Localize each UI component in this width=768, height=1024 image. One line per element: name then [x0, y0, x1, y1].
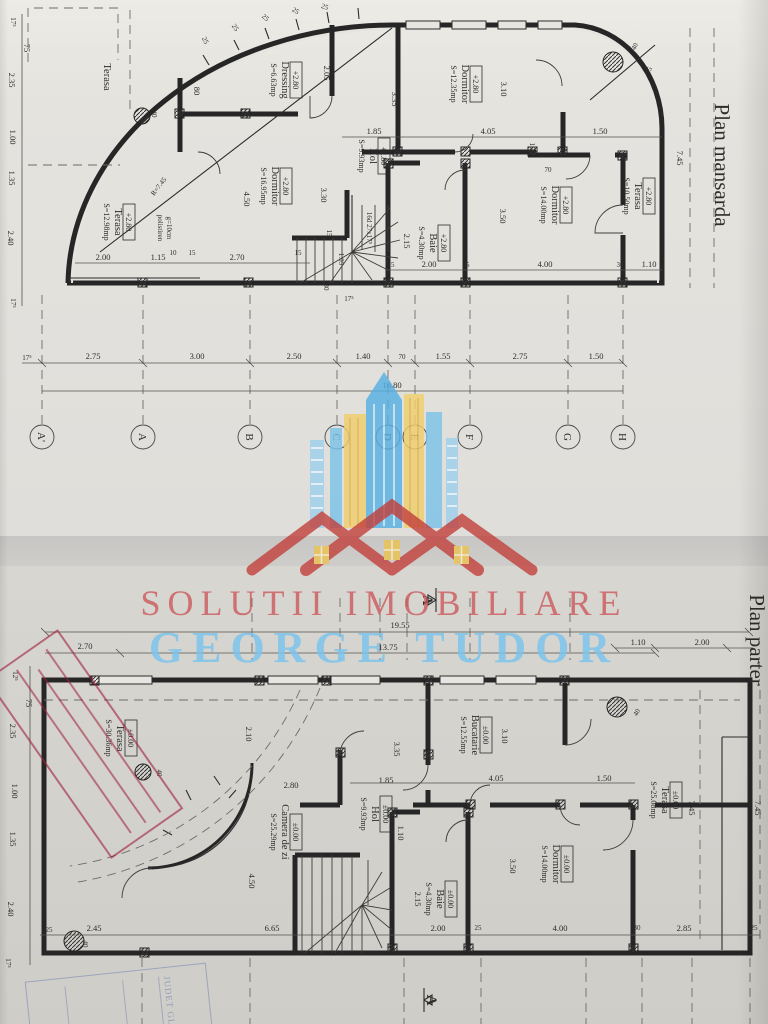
- dim-label: 3.10: [500, 729, 510, 744]
- dim-label: 1.10: [642, 259, 657, 269]
- dim-label: 4.05: [481, 126, 496, 136]
- room-area: S=14.00mp: [540, 845, 549, 882]
- dim-label: 7.45: [675, 151, 685, 166]
- dim-label: 1.10: [631, 637, 646, 647]
- insulation-note: polistiren: [156, 215, 164, 242]
- room-label-dressing: Dressing S=6.63mp +2.80: [269, 61, 302, 99]
- room-label-hol: Hol S=9.93mp ±0.00: [359, 796, 392, 832]
- room-label-hol: Hol S=9.93mp +2.80: [357, 138, 390, 174]
- dim-label: 17⁵: [344, 295, 354, 303]
- room-label-camera-de-zi: Camera de zi S=25.29mp ±0.00: [269, 804, 302, 859]
- room-name: Baie: [427, 233, 438, 253]
- photographed-plan-sheet: A' A B C D E F G H 17⁵ 75 2.35 1.00 1.35…: [0, 0, 768, 1024]
- dim-label: 6.65: [265, 923, 280, 933]
- room-level: +2.80: [439, 234, 448, 253]
- radius-label: R=7.45: [149, 176, 168, 198]
- room-name: Hol: [369, 806, 380, 822]
- dim-label: 2.35: [8, 724, 18, 739]
- axis-label: E: [408, 434, 420, 441]
- room-level: +2.80: [124, 213, 133, 232]
- dim-label: 2.75: [513, 351, 528, 361]
- dim-label: 25: [290, 6, 300, 17]
- room-label-dormitor-nord: Dormitor S=12.35mp +2.80: [449, 64, 482, 104]
- round-column: [603, 52, 623, 72]
- room-label-dormitor-est: Dormitor S=14.00mp +2.80: [539, 185, 572, 225]
- dim-label: 17⁵: [22, 354, 32, 362]
- dim-label: 4.00: [538, 259, 553, 269]
- dim-label: 70: [399, 353, 407, 361]
- room-area: S=25.29mp: [269, 813, 278, 850]
- dim-label: 1.85: [367, 126, 382, 136]
- dim-label: 17⁵: [9, 17, 17, 27]
- room-name: Bucatarie: [469, 715, 480, 756]
- dim-label: 25: [388, 261, 396, 269]
- room-level: +2.80: [379, 147, 388, 166]
- room-label-baie: Baie S=4.30mp +2.80: [417, 225, 450, 261]
- room-level: ±0.00: [381, 805, 390, 823]
- dim-label: 3.35: [390, 92, 400, 107]
- plan-title-mansarda: Plan mansarda: [710, 103, 734, 227]
- room-level: +2.80: [471, 75, 480, 94]
- dim-label: 3.30: [319, 188, 329, 203]
- dim-label: 2.00: [695, 637, 710, 647]
- dim-label: 75: [22, 44, 32, 53]
- room-label-dormitor-vest: Dormitor S=16.95mp +2.80: [259, 166, 292, 206]
- axis-label: A: [136, 433, 148, 441]
- room-level: ±0.00: [446, 890, 455, 908]
- dim-label: 25: [475, 924, 483, 932]
- dim-label: 3.10: [499, 82, 509, 97]
- room-name: Dressing: [279, 61, 290, 99]
- dim-label: 25: [200, 36, 210, 46]
- blue-stamp-text: JUDET GL: [162, 975, 177, 1024]
- room-label-terasa-est: Terasa S=25.08mp ±0.00: [649, 781, 682, 818]
- dim-label: 3.35: [392, 742, 402, 757]
- room-area: S=9.93mp: [359, 797, 368, 830]
- room-name: Terasa: [632, 182, 643, 210]
- room-level: ±0.00: [291, 823, 300, 841]
- axis-label: G: [561, 433, 573, 441]
- dim-label: 80: [192, 87, 202, 96]
- dim-label: 1.55: [436, 351, 451, 361]
- dim-label: 1.50: [589, 351, 604, 361]
- dim-label: 4.50: [247, 874, 257, 889]
- plan-title-parter: Plan parter: [745, 594, 768, 686]
- column-dim: 40: [632, 707, 643, 717]
- section-marker-top: A: [419, 595, 435, 606]
- room-area: S=12.35mp: [449, 65, 458, 102]
- dim-label: 2.35: [7, 73, 17, 88]
- dim-label: 15: [189, 249, 197, 257]
- dim-label: 2.85: [677, 923, 692, 933]
- dim-label: 1.40: [356, 351, 371, 361]
- dim-label: 2.75: [86, 351, 101, 361]
- room-area: S=6.63mp: [269, 63, 278, 96]
- dim-label: 10: [170, 249, 178, 257]
- dim-label: 7.45: [687, 801, 697, 816]
- room-name: Terasa: [101, 63, 112, 91]
- dim-label: 2.10: [244, 727, 254, 742]
- room-label-terasa-sv: Terasa S=12.98mp +2.80: [102, 203, 135, 240]
- dim-label: 4.05: [489, 773, 504, 783]
- dim-label: 40: [150, 111, 158, 119]
- room-area: S=10.50mp: [622, 177, 631, 214]
- room-label-bucatarie: Bucatarie S=12.55mp ±0.00: [459, 715, 492, 756]
- round-column: [64, 931, 84, 951]
- room-area: S=12.55mp: [459, 716, 468, 753]
- dim-label: 2.00: [431, 923, 446, 933]
- dim-label: 13.75: [378, 642, 397, 652]
- room-area: S=16.95mp: [259, 167, 268, 204]
- dim-label: 1.35: [8, 832, 18, 847]
- dim-label: 17⁵: [9, 298, 17, 308]
- stair-note: 16d 27x17⁵: [365, 212, 373, 245]
- dim-label: 3.50: [498, 209, 508, 224]
- dim-label: 2.15: [402, 234, 412, 249]
- parter-stairs: [302, 855, 392, 953]
- dim-label: 70: [545, 166, 553, 174]
- room-name: Dormitor: [269, 166, 280, 206]
- dim-label: 2.70: [78, 641, 93, 651]
- axis-label: C: [330, 433, 342, 440]
- room-area: S=25.08mp: [649, 781, 658, 818]
- dim-label: 3.00: [190, 351, 205, 361]
- room-area: S=9.93mp: [357, 139, 366, 172]
- dim-label: 25: [46, 926, 54, 934]
- dim-label: 1.85: [379, 775, 394, 785]
- axis-label: D: [381, 433, 393, 441]
- dim-label: 4.50: [242, 192, 252, 207]
- round-column: [134, 108, 150, 124]
- dim-label: 7.45: [753, 801, 763, 816]
- dim-label: 2.00: [422, 259, 437, 269]
- dim-label: 25: [230, 22, 241, 33]
- room-name: Terasa: [112, 208, 123, 236]
- room-level: +2.80: [281, 177, 290, 196]
- dim-label: 17⁵: [4, 958, 12, 968]
- dim-label: 1.05: [337, 253, 345, 266]
- dim-label: 25: [751, 924, 759, 932]
- room-level: ±0.00: [671, 791, 680, 809]
- dim-label: 2.15: [413, 892, 423, 907]
- room-area: S=4.30mp: [417, 226, 426, 259]
- dim-label: 1.50: [597, 773, 612, 783]
- dim-label: 19.55: [390, 620, 409, 630]
- dim-label: 1.50: [593, 126, 608, 136]
- room-level: +2.80: [291, 71, 300, 90]
- room-name: Dormitor: [459, 64, 470, 104]
- dim-label: 2.45: [87, 923, 102, 933]
- axis-label: F: [463, 434, 475, 440]
- room-level: ±0.00: [481, 726, 490, 744]
- room-name: Camera de zi: [279, 804, 290, 859]
- column-dim: 40: [81, 941, 89, 949]
- room-name: Baie: [434, 889, 445, 909]
- dim-label: 1.35: [7, 171, 17, 186]
- dim-label: 25: [320, 2, 330, 12]
- dim-label: 15: [528, 143, 536, 151]
- dim-label: 1.15: [151, 252, 166, 262]
- dim-label: 3.50: [508, 859, 518, 874]
- dim-label: 2.50: [287, 351, 302, 361]
- dim-label-total: 16.80: [382, 380, 401, 390]
- dim-label: 15: [295, 249, 303, 257]
- dim-label: 4.00: [553, 923, 568, 933]
- room-area: S=4.30mp: [424, 882, 433, 915]
- plan-mansarda: A' A B C D E F G H 17⁵ 75 2.35 1.00 1.35…: [0, 0, 768, 540]
- dim-label: 2.05: [322, 66, 332, 81]
- room-area: S=12.98mp: [102, 203, 111, 240]
- dim-label: 2.70: [230, 252, 245, 262]
- room-label-baie: Baie S=4.30mp ±0.00: [424, 881, 457, 917]
- axis-label: B: [243, 433, 255, 440]
- dim-label: 30: [634, 924, 642, 932]
- dim-label: 2.00: [96, 252, 111, 262]
- dim-label: 25: [260, 12, 271, 23]
- dim-label: 1.00: [10, 784, 20, 799]
- dim-label: 1.10: [396, 826, 406, 841]
- room-name: Terasa: [659, 786, 670, 814]
- dim-label: 2.40: [6, 902, 16, 917]
- room-name: Dormitor: [550, 844, 561, 884]
- dim-label: 25: [463, 261, 471, 269]
- room-level: +2.80: [644, 187, 653, 206]
- dim-label: 2.40: [6, 231, 16, 246]
- room-level: ±0.00: [562, 855, 571, 873]
- axis-label: A': [35, 432, 47, 442]
- room-area: S=14.00mp: [539, 186, 548, 223]
- dim-label: 15: [325, 230, 333, 238]
- room-label-dormitor: Dormitor S=14.00mp ±0.00: [540, 844, 573, 884]
- dim-label: 1.00: [8, 130, 18, 145]
- dim-label: 30: [322, 284, 330, 292]
- dim-label: 2.80: [284, 780, 299, 790]
- room-level: +2.80: [561, 196, 570, 215]
- room-name: Hol: [367, 148, 378, 164]
- axis-label: H: [616, 433, 628, 441]
- insulation-note: g=10cm: [165, 217, 173, 241]
- room-label-terasa-est: Terasa S=10.50mp +2.80: [622, 177, 655, 214]
- room-name: Dormitor: [549, 185, 560, 225]
- dim-label: 30: [617, 261, 625, 269]
